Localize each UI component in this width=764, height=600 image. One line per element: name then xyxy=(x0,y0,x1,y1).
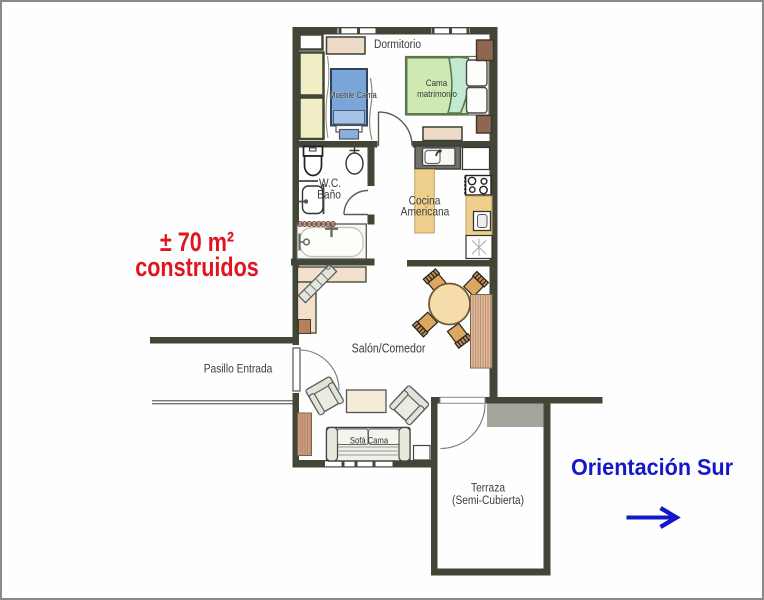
svg-text:Pasillo Entrada: Pasillo Entrada xyxy=(204,363,273,376)
svg-text:construidos: construidos xyxy=(135,253,259,283)
svg-text:(Semi-Cubierta): (Semi-Cubierta) xyxy=(452,494,524,507)
svg-text:Americana: Americana xyxy=(401,206,450,219)
svg-text:Terraza: Terraza xyxy=(471,482,506,495)
svg-text:Baño: Baño xyxy=(317,189,341,202)
svg-text:Salón/Comedor: Salón/Comedor xyxy=(352,342,426,356)
svg-text:matrimonio: matrimonio xyxy=(417,88,457,99)
svg-text:Orientación Sur: Orientación Sur xyxy=(571,454,733,480)
svg-text:Mueble Cama: Mueble Cama xyxy=(329,89,377,100)
svg-text:Dormitorio: Dormitorio xyxy=(374,38,421,51)
svg-text:Sofá Cama: Sofá Cama xyxy=(350,435,389,446)
svg-text:Cama: Cama xyxy=(426,77,448,88)
